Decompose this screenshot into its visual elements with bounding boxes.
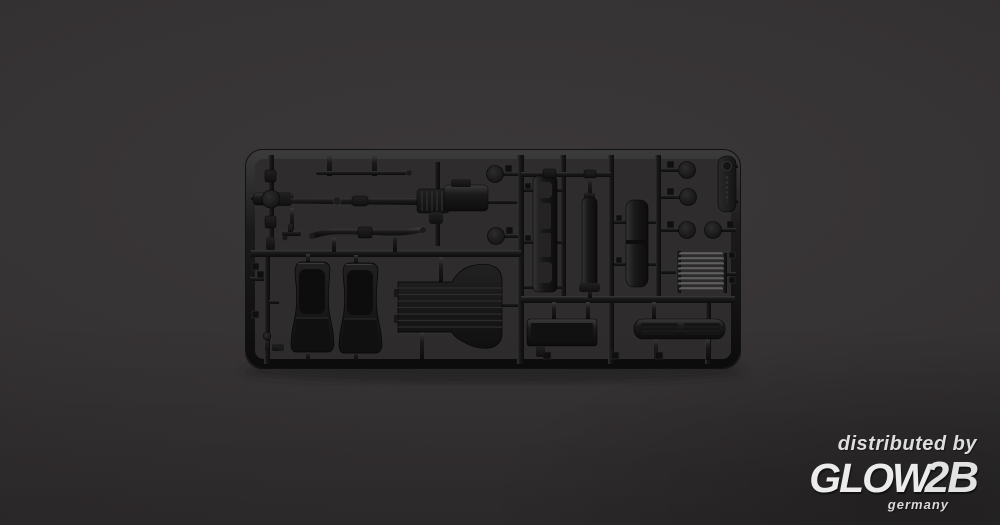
watermark-brand-glow: GLOW	[809, 455, 929, 501]
ladder-frame-part	[533, 176, 557, 292]
watermark-brand-logo: GLOW2B	[809, 456, 977, 500]
fuel-tank-part	[626, 200, 648, 287]
sprue	[246, 150, 741, 369]
bucket-seat-part	[291, 262, 334, 352]
running-board-part	[634, 319, 725, 339]
molded-info-tab-part	[718, 156, 736, 212]
watermark-brand-2b: 2B	[925, 453, 977, 502]
product-photo: distributed by GLOW2B germany	[0, 0, 1000, 525]
bucket-seat-part	[339, 263, 382, 353]
watermark: distributed by GLOW2B germany	[809, 434, 977, 511]
frame-rail-part	[579, 193, 600, 292]
watermark-distributed-by: distributed by	[809, 434, 977, 454]
